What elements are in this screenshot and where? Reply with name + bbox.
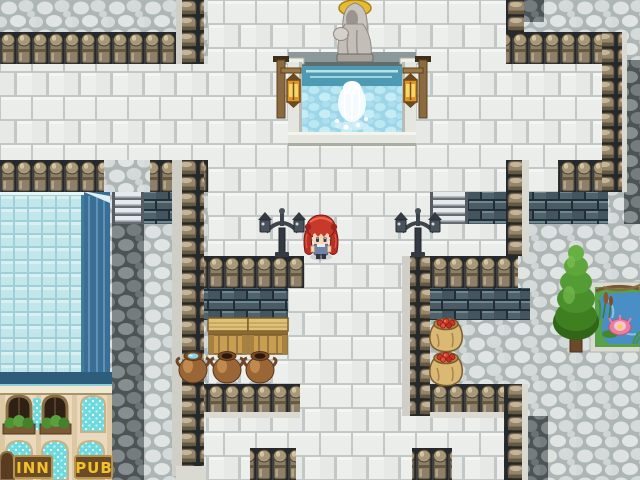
inn-sign: INN (14, 456, 52, 478)
apple-sack-1[interactable] (430, 319, 462, 352)
window-glass-upper (81, 396, 105, 432)
pub-sign-text: PUB (75, 459, 113, 477)
pub-sign: PUB (75, 456, 113, 478)
player-character[interactable] (304, 215, 338, 261)
roof-eave (0, 372, 112, 386)
apple-sack-2[interactable] (430, 353, 462, 386)
crate-2[interactable] (248, 318, 288, 354)
glass-roof (0, 192, 84, 372)
dark-path-bottom (528, 416, 548, 480)
inn-pub-building: INN PUB (0, 192, 113, 480)
statue (334, 0, 374, 62)
inn-sign-text: INN (16, 459, 50, 477)
door[interactable] (0, 452, 14, 480)
gate-pillar-right (412, 448, 452, 480)
stairs-left[interactable] (112, 192, 144, 224)
face (313, 232, 329, 244)
gate-pillar-left (250, 448, 296, 480)
game-map: INN PUB (0, 0, 640, 480)
dark-path-left (112, 222, 144, 480)
dark-path-top (524, 0, 544, 22)
game-viewport[interactable]: INN PUB (0, 0, 640, 480)
crate-1[interactable] (208, 318, 248, 354)
